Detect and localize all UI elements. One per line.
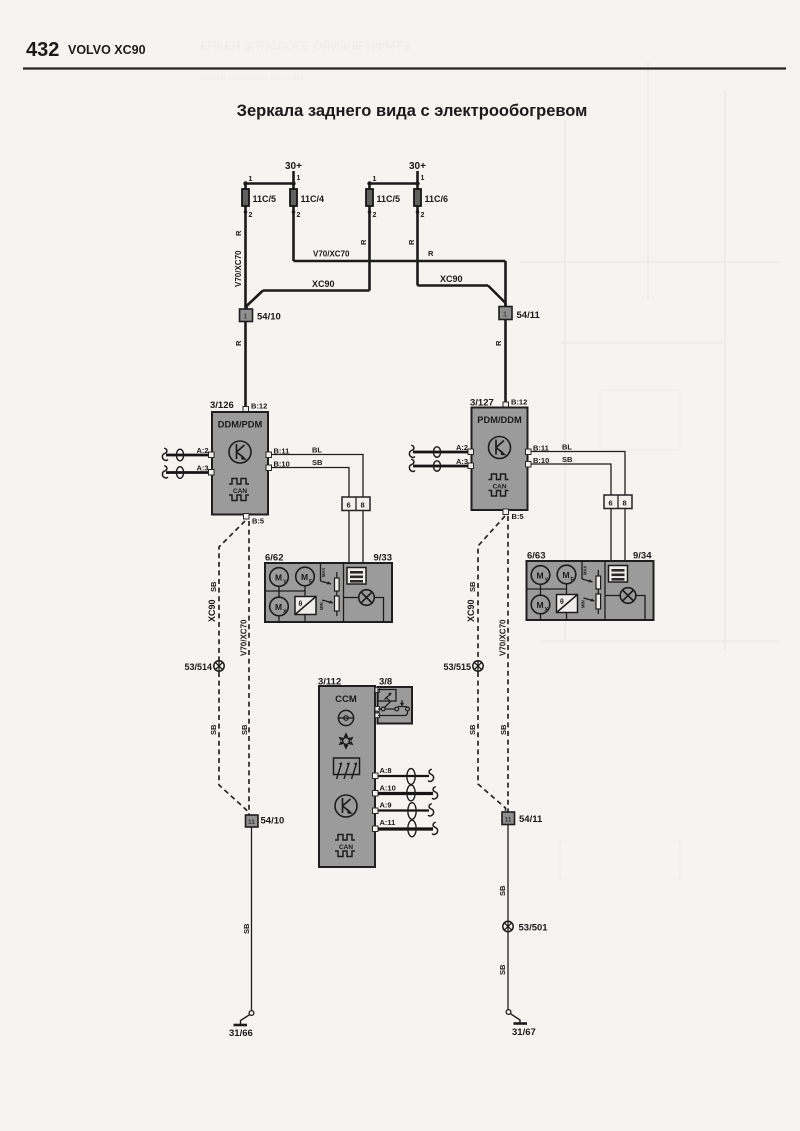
svg-text:2: 2: [421, 212, 425, 219]
svg-text:BL: BL: [312, 446, 322, 455]
svg-text:PDM/DDM: PDM/DDM: [477, 415, 522, 425]
svg-text:53/501: 53/501: [519, 923, 549, 934]
svg-text:9/33: 9/33: [374, 553, 393, 564]
svg-text:V70/XC70: V70/XC70: [313, 250, 350, 259]
svg-text:54/11: 54/11: [519, 814, 543, 825]
svg-text:SB: SB: [209, 581, 218, 592]
svg-text:SB: SB: [499, 724, 508, 735]
svg-text:6/62: 6/62: [265, 553, 284, 564]
svg-text:BL: BL: [562, 443, 572, 452]
svg-text:54/10: 54/10: [257, 312, 281, 323]
svg-text:30+: 30+: [285, 161, 302, 172]
svg-text:11C/4: 11C/4: [301, 194, 325, 204]
svg-text:ЕПКЕН ЗППСЛОГЕ ОЯИЗЛЕ НФМТЗ: ЕПКЕН ЗППСЛОГЕ ОЯИЗЛЕ НФМТЗ: [200, 39, 410, 53]
svg-text:SB: SB: [312, 458, 323, 467]
svg-text:8: 8: [623, 499, 627, 508]
svg-text:A:8: A:8: [380, 766, 392, 775]
svg-text:30+: 30+: [409, 161, 426, 172]
svg-text:XC90: XC90: [466, 599, 476, 622]
svg-text:2: 2: [249, 212, 253, 219]
svg-text:SB: SB: [242, 923, 251, 934]
svg-text:A:10: A:10: [380, 784, 396, 793]
svg-text:3/126: 3/126: [210, 400, 234, 411]
svg-text:11C/6: 11C/6: [425, 194, 449, 204]
svg-text:SB: SB: [468, 581, 477, 592]
svg-text:нввтд непяное колתבو: нввтд непяное колתבو: [200, 72, 304, 83]
svg-text:11: 11: [248, 819, 255, 826]
svg-text:1: 1: [244, 314, 248, 321]
svg-text:XC90: XC90: [440, 274, 463, 284]
svg-text:CCM: CCM: [335, 694, 357, 705]
svg-text:9/34: 9/34: [633, 551, 652, 562]
svg-text:XC90: XC90: [312, 279, 335, 289]
svg-text:432: 432: [26, 39, 59, 61]
svg-text:2: 2: [373, 212, 377, 219]
svg-text:54/10: 54/10: [261, 816, 285, 827]
svg-text:3/8: 3/8: [379, 677, 392, 688]
svg-text:DDM/PDM: DDM/PDM: [218, 420, 263, 430]
svg-text:Зеркала заднего вида с электро: Зеркала заднего вида с электрообогревом: [237, 102, 588, 120]
svg-text:SB: SB: [498, 964, 507, 975]
svg-text:6/63: 6/63: [527, 551, 546, 562]
svg-text:B:5: B:5: [512, 512, 524, 521]
svg-text:R: R: [428, 249, 434, 258]
svg-text:6: 6: [609, 499, 613, 508]
svg-text:SB: SB: [562, 455, 573, 464]
svg-text:53/514: 53/514: [185, 662, 213, 672]
svg-text:V70/XC70: V70/XC70: [499, 619, 508, 656]
svg-text:V70/XC70: V70/XC70: [240, 619, 249, 656]
svg-text:XC90: XC90: [207, 599, 217, 622]
svg-text:R: R: [234, 230, 243, 236]
svg-text:11: 11: [505, 817, 512, 824]
svg-text:6: 6: [347, 501, 351, 510]
svg-text:2: 2: [297, 212, 301, 219]
svg-text:SB: SB: [209, 724, 218, 735]
svg-text:8: 8: [361, 501, 365, 510]
svg-text:53/515: 53/515: [444, 662, 472, 672]
svg-text:11C/5: 11C/5: [377, 194, 401, 204]
svg-text:B:5: B:5: [252, 517, 264, 526]
svg-text:SB: SB: [498, 885, 507, 896]
svg-text:VOLVO XC90: VOLVO XC90: [68, 43, 146, 57]
svg-text:R: R: [494, 340, 503, 346]
svg-text:11C/5: 11C/5: [253, 194, 277, 204]
svg-text:SB: SB: [468, 724, 477, 735]
svg-text:1: 1: [249, 176, 253, 183]
svg-text:R: R: [407, 239, 416, 245]
svg-text:A:9: A:9: [380, 801, 392, 810]
svg-text:R: R: [359, 239, 368, 245]
svg-text:B:12: B:12: [511, 398, 527, 407]
svg-text:31/66: 31/66: [229, 1028, 253, 1039]
svg-text:1: 1: [421, 175, 425, 182]
svg-text:54/11: 54/11: [517, 310, 541, 321]
svg-text:31/67: 31/67: [512, 1027, 536, 1038]
svg-text:SB: SB: [240, 724, 249, 735]
svg-text:1: 1: [373, 176, 377, 183]
svg-text:1: 1: [297, 175, 301, 182]
svg-text:B:12: B:12: [251, 402, 267, 411]
svg-text:V70/XC70: V70/XC70: [234, 250, 243, 287]
svg-text:1: 1: [503, 312, 507, 319]
svg-text:R: R: [234, 340, 243, 346]
svg-text:A:11: A:11: [380, 818, 396, 827]
